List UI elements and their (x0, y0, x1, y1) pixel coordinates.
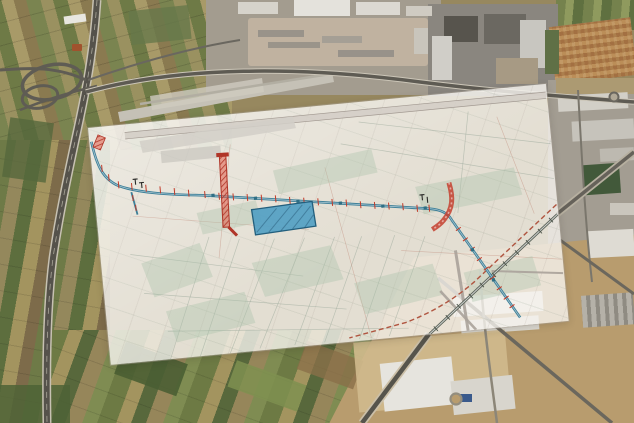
road-east-west (86, 40, 634, 102)
plan-overlay-sheet (88, 84, 569, 365)
railway-corridor (419, 214, 568, 334)
plan-linework (88, 84, 569, 365)
basin-polygon (251, 201, 316, 235)
map-canvas[interactable] (0, 0, 634, 423)
parcel-tint-patches (132, 134, 543, 345)
